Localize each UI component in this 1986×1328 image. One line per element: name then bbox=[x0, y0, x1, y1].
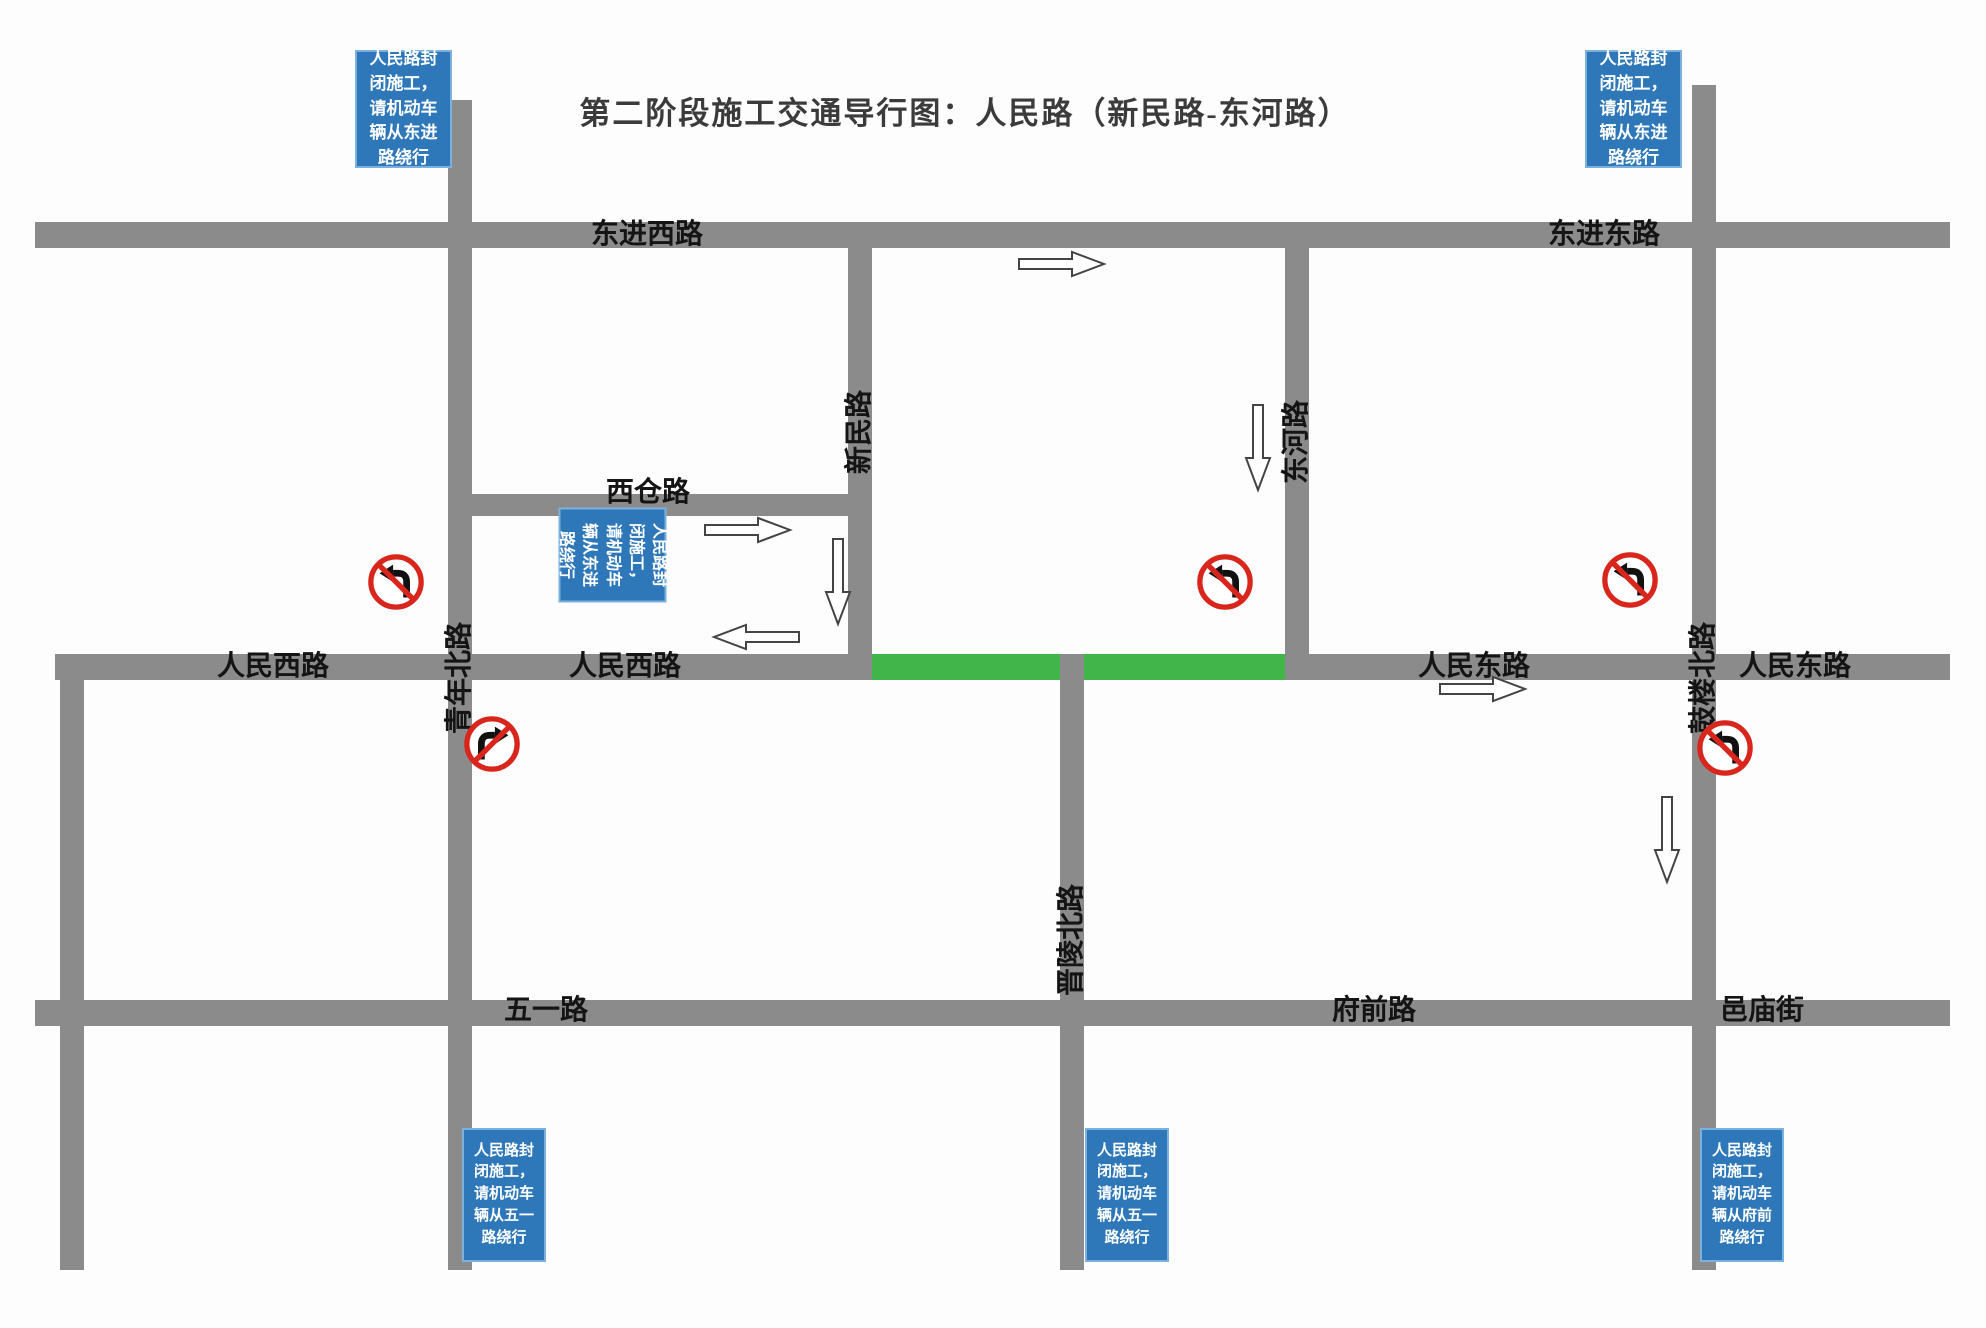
no-left-turn-sign-icon bbox=[1601, 551, 1659, 609]
no-left-turn-sign-icon bbox=[367, 553, 425, 611]
road-label-xinmin: 新民路 bbox=[846, 390, 874, 474]
detour-notice-bottom-middle: 人民路封闭施工，请机动车辆从五一路绕行 bbox=[1085, 1128, 1169, 1262]
flow-arrow-right-icon bbox=[1438, 674, 1528, 704]
flow-arrow-down-icon bbox=[823, 537, 853, 627]
road-left-stub bbox=[60, 654, 84, 1270]
road-label-wuyi: 五一路 bbox=[504, 997, 588, 1025]
no-left-turn-sign-icon bbox=[1196, 553, 1254, 611]
road-label-yimiao: 邑庙街 bbox=[1720, 997, 1804, 1025]
road-label-donghe: 东河路 bbox=[1283, 400, 1311, 484]
detour-notice-text: 人民路封闭施工，请机动车辆从东进路绕行 bbox=[1600, 47, 1668, 170]
road-dongjin bbox=[35, 222, 1950, 248]
flow-arrow-right-icon bbox=[703, 515, 793, 545]
road-label-renmin-west-1: 人民西路 bbox=[217, 653, 329, 681]
road-wuyi-fuqian bbox=[35, 1000, 1950, 1026]
detour-notice-xicang: 人民路封闭施工，请机动车辆从东进路绕行 bbox=[559, 508, 667, 603]
road-label-dongjin-west: 东进西路 bbox=[591, 221, 703, 249]
flow-arrow-down-icon bbox=[1652, 795, 1682, 885]
no-left-turn-sign-icon bbox=[1696, 719, 1754, 777]
road-label-gulou-north: 鼓楼北路 bbox=[1690, 622, 1718, 734]
flow-arrow-left-icon bbox=[711, 622, 801, 652]
road-label-jinling-north: 晋陵北路 bbox=[1058, 884, 1086, 996]
road-label-xicang: 西仓路 bbox=[606, 479, 690, 507]
road-label-fuqian: 府前路 bbox=[1332, 997, 1416, 1025]
detour-notice-bottom-right: 人民路封闭施工，请机动车辆从府前路绕行 bbox=[1700, 1128, 1784, 1262]
detour-notice-text: 人民路封闭施工，请机动车辆从东进路绕行 bbox=[370, 47, 438, 170]
traffic-diversion-map: 第二阶段施工交通导行图：人民路（新民路-东河路） 东进西路 东进东路 西仓路 人… bbox=[0, 0, 1986, 1328]
road-label-renmin-east-2: 人民东路 bbox=[1739, 653, 1851, 681]
flow-arrow-right-icon bbox=[1017, 249, 1107, 279]
detour-notice-text: 人民路封闭施工，请机动车辆从五一路绕行 bbox=[474, 1141, 534, 1250]
detour-notice-top-right: 人民路封闭施工，请机动车辆从东进路绕行 bbox=[1585, 50, 1682, 168]
flow-arrow-down-icon bbox=[1243, 403, 1273, 493]
detour-notice-top-left: 人民路封闭施工，请机动车辆从东进路绕行 bbox=[355, 50, 452, 168]
detour-notice-text: 人民路封闭施工，请机动车辆从府前路绕行 bbox=[1712, 1141, 1772, 1250]
detour-notice-bottom-left: 人民路封闭施工，请机动车辆从五一路绕行 bbox=[462, 1128, 546, 1262]
road-label-renmin-west-2: 人民西路 bbox=[569, 653, 681, 681]
no-right-turn-sign-icon bbox=[463, 715, 521, 773]
detour-notice-text: 人民路封闭施工，请机动车辆从五一路绕行 bbox=[1097, 1141, 1157, 1250]
detour-notice-text: 人民路封闭施工，请机动车辆从东进路绕行 bbox=[555, 523, 671, 587]
road-label-dongjin-east: 东进东路 bbox=[1548, 221, 1660, 249]
closure-gap-jinling bbox=[1060, 654, 1084, 680]
